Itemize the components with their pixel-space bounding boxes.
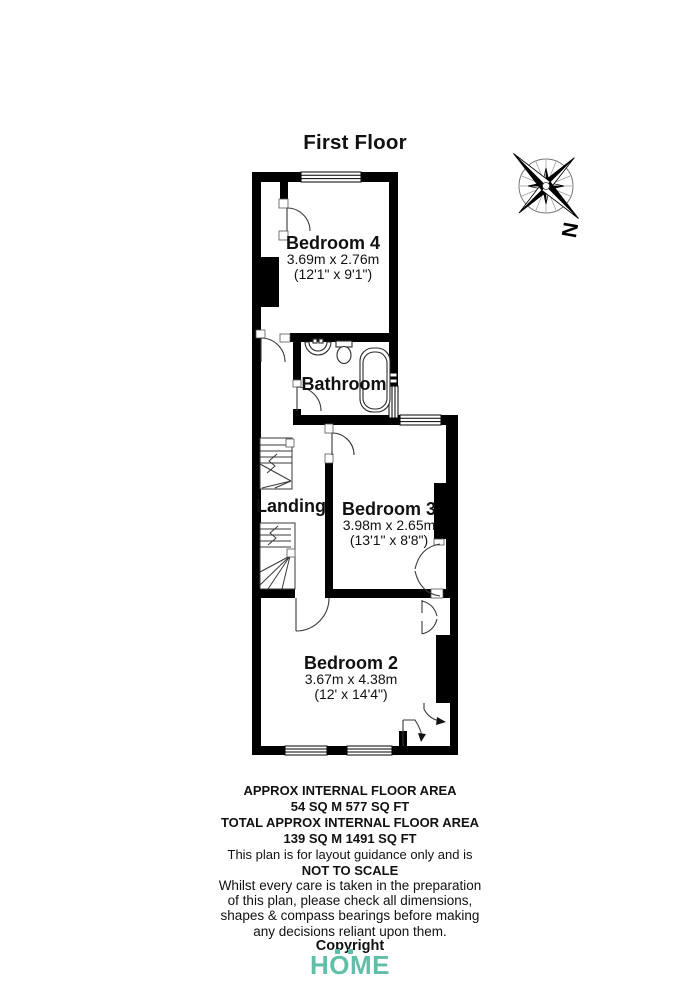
bedroom2-name: Bedroom 2: [304, 653, 398, 673]
toilet: [336, 341, 352, 364]
bedroom3-name: Bedroom 3: [342, 499, 436, 519]
not-to-scale: NOT TO SCALE: [0, 863, 700, 879]
room-bedroom3: Bedroom 3 3.98m x 2.65m (13'1" x 8'8"): [342, 499, 436, 548]
total-area-label: TOTAL APPROX INTERNAL FLOOR AREA: [0, 815, 700, 831]
compass-north-label: N: [557, 220, 582, 239]
wardrobe-doors-bedroom2: [422, 600, 437, 634]
bathroom-name: Bathroom: [302, 374, 387, 394]
bedroom4-imperial: (12'1" x 9'1"): [294, 266, 372, 282]
window-bedroom2-left: [285, 746, 327, 755]
disclaimer-line: shapes & compass bearings before making: [0, 908, 700, 923]
approx-area-label: APPROX INTERNAL FLOOR AREA: [0, 783, 700, 799]
bedroom4-name: Bedroom 4: [286, 233, 380, 253]
compass-rose-icon: N: [514, 154, 582, 240]
room-bedroom4: Bedroom 4 3.69m x 2.76m (12'1" x 9'1"): [286, 233, 380, 282]
footer-area-block: APPROX INTERNAL FLOOR AREA 54 SQ M 577 S…: [0, 783, 700, 879]
wardrobe-doors-bedroom3: [415, 544, 440, 596]
logo-block: HOME: [0, 951, 700, 979]
logo-dot-icon: [335, 949, 340, 954]
guidance-note: This plan is for layout guidance only an…: [0, 847, 700, 863]
footer-disclaimer-block: Whilst every care is taken in the prepar…: [0, 878, 700, 939]
home-logo: HOME: [310, 951, 390, 979]
disclaimer-line: Whilst every care is taken in the prepar…: [0, 878, 700, 893]
landing-name: Landing: [256, 496, 326, 516]
stairs-upper-flight: [260, 438, 294, 489]
home-logo-text: HOME: [310, 950, 390, 980]
bedroom3-metric: 3.98m x 2.65m: [343, 517, 436, 533]
door-bedroom4-closet: [287, 208, 310, 231]
room-bedroom2: Bedroom 2 3.67m x 4.38m (12' x 14'4"): [304, 653, 398, 702]
approx-area-value: 54 SQ M 577 SQ FT: [0, 799, 700, 815]
logo-dot-icon: [348, 949, 353, 954]
closet-doors-bedroom2: [403, 703, 446, 746]
disclaimer-line: any decisions reliant upon them.: [0, 924, 700, 939]
window-bedroom2-right: [347, 746, 392, 755]
bedroom2-metric: 3.67m x 4.38m: [305, 671, 398, 687]
window-hall: [400, 415, 441, 425]
stairs-lower-flight: [260, 523, 295, 589]
bedroom2-imperial: (12' x 14'4"): [314, 686, 387, 702]
door-bedroom3: [332, 433, 354, 455]
disclaimer-line: of this plan, please check all dimension…: [0, 893, 700, 908]
bedroom3-imperial: (13'1" x 8'8"): [350, 532, 428, 548]
bedroom4-metric: 3.69m x 2.76m: [287, 251, 380, 267]
door-bedroom2: [296, 598, 329, 631]
total-area-value: 139 SQ M 1491 SQ FT: [0, 831, 700, 847]
floorplan-page: First Floor: [0, 0, 700, 989]
window-bedroom4: [301, 172, 361, 182]
